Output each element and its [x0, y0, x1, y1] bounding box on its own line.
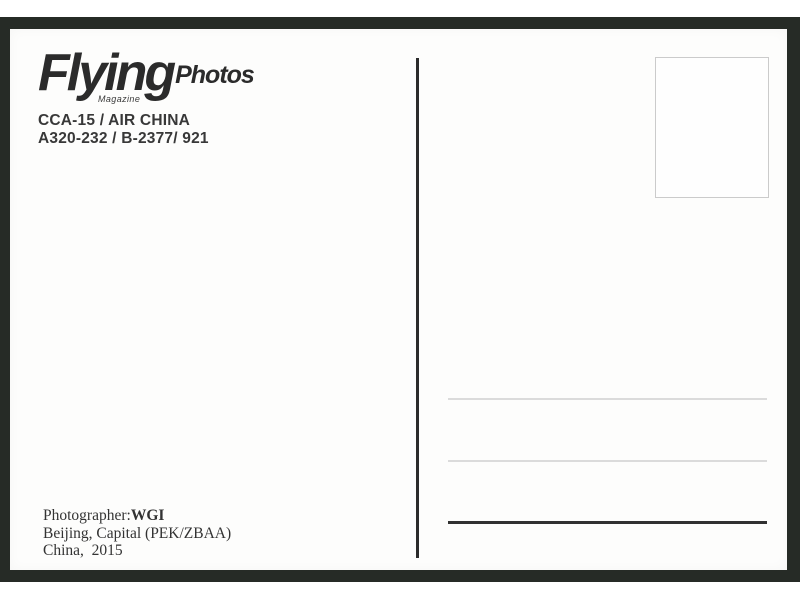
address-rule-3 — [448, 521, 767, 524]
location-line: Beijing, Capital (PEK/ZBAA) — [43, 525, 231, 543]
logo-brand-text: Flying — [38, 47, 173, 99]
address-rule-2 — [448, 460, 767, 462]
photographer-name: WGI — [131, 507, 165, 524]
stamp-box — [655, 57, 769, 198]
magazine-logo: Flying Photos Magazine — [38, 47, 252, 99]
photographer-line: Photographer:WGI — [43, 507, 231, 525]
postcard-frame: Flying Photos Magazine CCA-15 / AIR CHIN… — [0, 17, 800, 582]
postcard-back: Flying Photos Magazine CCA-15 / AIR CHIN… — [10, 29, 787, 570]
photo-caption: CCA-15 / AIR CHINA A320-232 / B-2377/ 92… — [38, 112, 209, 147]
caption-line-2: A320-232 / B-2377/ 921 — [38, 130, 209, 148]
photographer-label: Photographer: — [43, 507, 131, 524]
logo-suffix-text: Photos — [175, 61, 254, 90]
credits-block: Photographer:WGI Beijing, Capital (PEK/Z… — [43, 507, 231, 560]
address-rule-1 — [448, 398, 767, 400]
logo-tagline-text: Magazine — [98, 94, 140, 104]
caption-line-1: CCA-15 / AIR CHINA — [38, 112, 209, 130]
country-year-line: China, 2015 — [43, 542, 231, 560]
center-divider-line — [416, 58, 419, 558]
scanned-postcard-page: Flying Photos Magazine CCA-15 / AIR CHIN… — [0, 0, 800, 600]
